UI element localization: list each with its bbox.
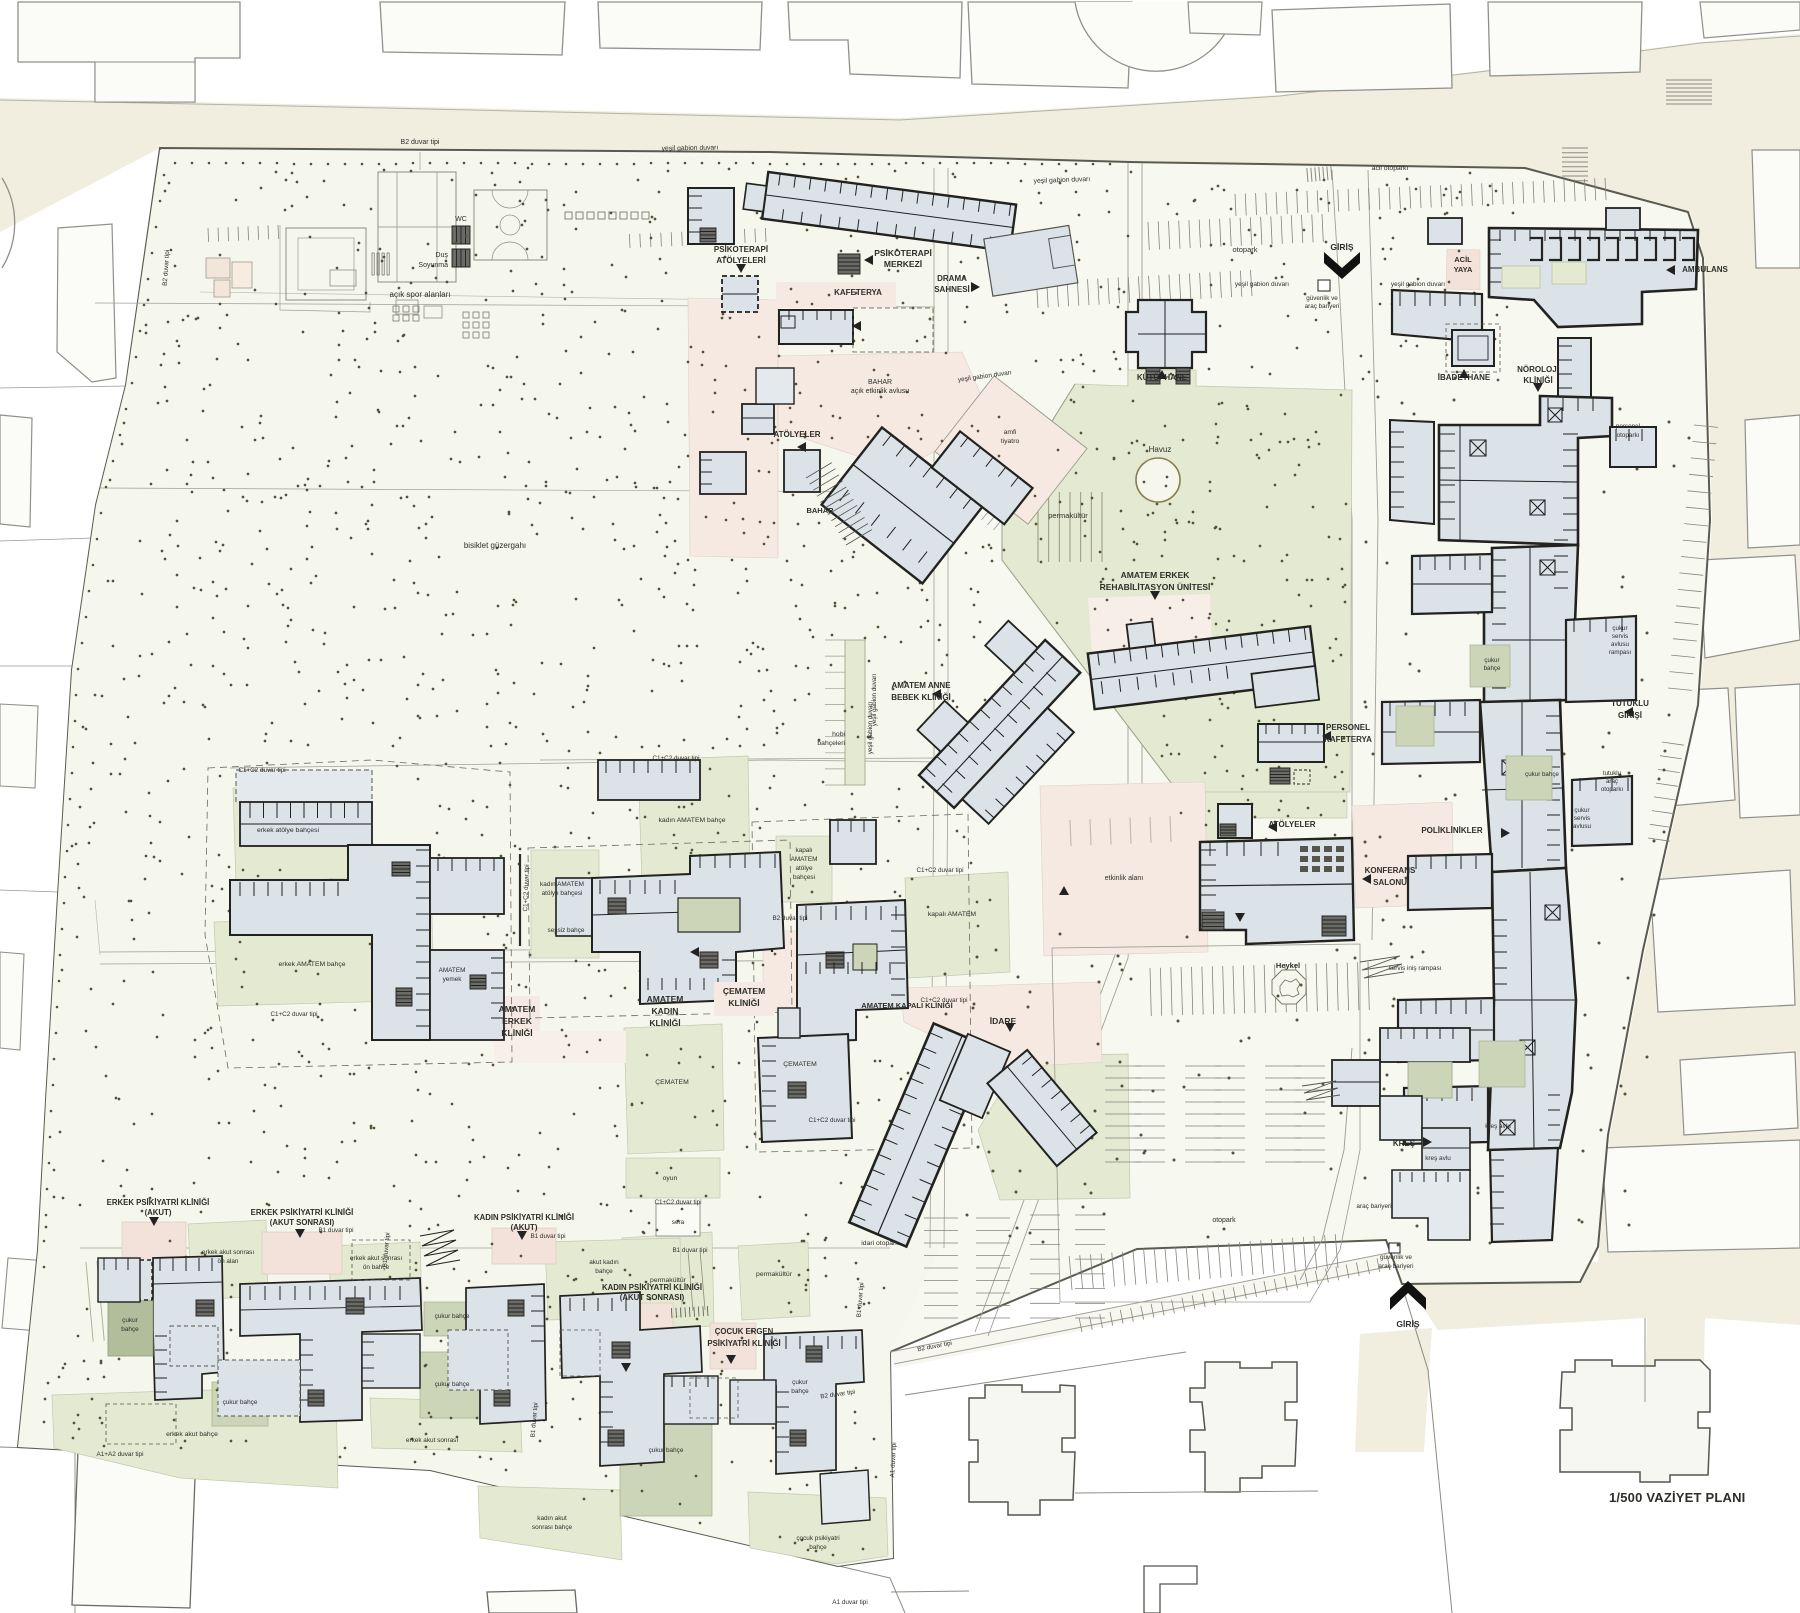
svg-text:C1+C2 duvar tipi: C1+C2 duvar tipi — [270, 1011, 317, 1018]
svg-text:ÇEMATEM: ÇEMATEM — [655, 1079, 689, 1086]
svg-text:bahçe: bahçe — [1484, 665, 1501, 672]
svg-text:araç: araç — [1606, 778, 1618, 785]
svg-text:KADIN PSİKİYATRİ KLİNİĞİ: KADIN PSİKİYATRİ KLİNİĞİ — [474, 1213, 574, 1222]
svg-text:amfi: amfi — [1004, 429, 1017, 436]
svg-text:ACİL: ACİL — [1454, 255, 1472, 264]
svg-text:C1+C2 duvar tipi: C1+C2 duvar tipi — [654, 1199, 701, 1206]
svg-text:çukur: çukur — [1574, 807, 1589, 814]
svg-text:A1 duvar tipi: A1 duvar tipi — [832, 1599, 868, 1606]
svg-text:KONFERANS: KONFERANS — [1365, 866, 1416, 875]
svg-text:araç bariyeri: araç bariyeri — [1305, 303, 1340, 310]
svg-text:ERKEK PSİKİYATRİ KLİNİĞİ: ERKEK PSİKİYATRİ KLİNİĞİ — [251, 1208, 354, 1217]
svg-text:çukur: çukur — [1484, 657, 1499, 664]
svg-text:yemek: yemek — [443, 976, 463, 983]
svg-text:avlusu: avlusu — [1611, 641, 1629, 648]
svg-text:GİRİŞ: GİRİŞ — [1396, 1319, 1419, 1329]
svg-text:çocuk psikiyatri: çocuk psikiyatri — [796, 1535, 839, 1542]
svg-text:erkek akut sonrası: erkek akut sonrası — [406, 1437, 458, 1444]
svg-text:otoparkı: otoparkı — [1601, 786, 1624, 793]
svg-text:kadın AMATEM bahçe: kadın AMATEM bahçe — [658, 817, 725, 824]
svg-text:yeşil gabion duvarı: yeşil gabion duvarı — [662, 145, 719, 153]
svg-text:B1 duvar tipi: B1 duvar tipi — [530, 1233, 565, 1240]
svg-text:idari otopark: idari otopark — [861, 1240, 899, 1247]
svg-text:KLİNİĞİ: KLİNİĞİ — [649, 1017, 680, 1028]
svg-text:bisiklet güzergahı: bisiklet güzergahı — [464, 541, 526, 550]
svg-text:WC: WC — [455, 216, 467, 223]
svg-text:ATÖLYELER: ATÖLYELER — [773, 430, 820, 439]
svg-text:AMATEM: AMATEM — [647, 994, 684, 1004]
svg-text:ATÖLYELERİ: ATÖLYELERİ — [716, 256, 765, 265]
svg-text:B1 duvar tipi: B1 duvar tipi — [318, 1227, 353, 1234]
svg-text:Duş: Duş — [436, 252, 449, 259]
svg-text:çukur bahçe: çukur bahçe — [435, 1313, 470, 1320]
svg-text:yeşil gabion duvarı: yeşil gabion duvarı — [1235, 281, 1289, 288]
svg-text:çukur: çukur — [1612, 625, 1627, 632]
svg-text:avlusu: avlusu — [1573, 823, 1591, 830]
svg-text:çukur bahçe: çukur bahçe — [1525, 771, 1559, 778]
svg-text:AMBULANS: AMBULANS — [1682, 265, 1728, 274]
svg-text:PERSONEL: PERSONEL — [1326, 723, 1370, 732]
svg-text:MERKEZİ: MERKEZİ — [884, 259, 922, 269]
svg-text:(AKUT): (AKUT) — [145, 1208, 172, 1217]
svg-text:çukur bahçe: çukur bahçe — [223, 1399, 258, 1406]
svg-text:çukur bahçe: çukur bahçe — [649, 1447, 684, 1454]
svg-text:AMATEM KAPALI KLİNİĞİ: AMATEM KAPALI KLİNİĞİ — [861, 1001, 952, 1010]
svg-text:ÇEMATEM: ÇEMATEM — [723, 986, 765, 996]
svg-text:KAFETERYA: KAFETERYA — [834, 288, 882, 297]
svg-text:KADIN: KADIN — [652, 1006, 679, 1016]
svg-text:acil otoparkı: acil otoparkı — [1372, 165, 1409, 172]
svg-text:C1+C2 duvar tipi: C1+C2 duvar tipi — [652, 755, 699, 762]
svg-text:kapalı AMATEM: kapalı AMATEM — [928, 911, 977, 918]
svg-text:ERKEK: ERKEK — [502, 1016, 533, 1026]
svg-text:TUTUKLU: TUTUKLU — [1611, 699, 1649, 708]
svg-text:AMATEM: AMATEM — [791, 856, 818, 863]
svg-text:(AKUT SONRASI): (AKUT SONRASI) — [620, 1293, 685, 1302]
svg-text:C1+C2 duvar tipi: C1+C2 duvar tipi — [808, 1117, 855, 1124]
svg-text:Heykel: Heykel — [1276, 961, 1300, 970]
svg-text:REHABİLİTASYON ÜNİTESİ: REHABİLİTASYON ÜNİTESİ — [1100, 582, 1211, 592]
svg-text:(AKUT): (AKUT) — [511, 1223, 538, 1232]
svg-text:A1+A2 duvar tipi: A1+A2 duvar tipi — [96, 1451, 143, 1458]
svg-text:çukur: çukur — [122, 1317, 138, 1324]
svg-text:B1 duvar tipi: B1 duvar tipi — [672, 1247, 707, 1254]
svg-text:tutuklu: tutuklu — [1603, 770, 1622, 777]
svg-text:BEBEK KLİNİĞİ: BEBEK KLİNİĞİ — [891, 693, 951, 702]
svg-text:ÇEMATEM: ÇEMATEM — [783, 1061, 817, 1068]
svg-text:hobi: hobi — [832, 731, 845, 738]
svg-text:ön alan: ön alan — [218, 1258, 239, 1265]
svg-text:SALONU: SALONU — [1373, 878, 1407, 887]
svg-text:Havuz: Havuz — [1149, 445, 1172, 454]
svg-text:PSİKOTERAPİ: PSİKOTERAPİ — [714, 245, 768, 254]
svg-text:bahçe: bahçe — [121, 1326, 139, 1333]
svg-text:erkek akut sonrası: erkek akut sonrası — [202, 1249, 254, 1256]
svg-text:POLİKLİNİKLER: POLİKLİNİKLER — [1421, 826, 1483, 835]
svg-text:atölye bahçesi: atölye bahçesi — [542, 890, 583, 897]
svg-text:araç bariyeri: araç bariyeri — [1378, 1263, 1413, 1270]
svg-text:ÇOCUK ERGEN: ÇOCUK ERGEN — [715, 1327, 774, 1336]
svg-text:B2 duvar tipi: B2 duvar tipi — [772, 915, 807, 922]
svg-text:yeşil gabion duvarı: yeşil gabion duvarı — [1391, 281, 1445, 288]
svg-text:bahçe: bahçe — [809, 1544, 827, 1551]
svg-text:KLİNİĞİ: KLİNİĞİ — [501, 1027, 532, 1038]
svg-text:kreş avlu: kreş avlu — [1485, 1123, 1511, 1130]
svg-text:C1+C2 duvar tipi: C1+C2 duvar tipi — [916, 867, 963, 874]
svg-text:yeşil gabion duvarı: yeşil gabion duvarı — [867, 702, 874, 755]
svg-text:kadın akut: kadın akut — [537, 1515, 567, 1522]
svg-text:erkek akut bahçe: erkek akut bahçe — [166, 1431, 218, 1438]
svg-text:kreş avlu: kreş avlu — [1425, 1155, 1451, 1162]
svg-text:personel: personel — [1616, 423, 1640, 430]
svg-text:KLİNİĞİ: KLİNİĞİ — [728, 997, 759, 1008]
svg-text:servis: servis — [1612, 633, 1628, 640]
svg-text:PSİKİYATRİ KLİNİĞİ: PSİKİYATRİ KLİNİĞİ — [707, 1339, 780, 1348]
svg-text:AMATEM ANNE: AMATEM ANNE — [891, 681, 951, 690]
svg-text:servis iniş rampası: servis iniş rampası — [1389, 965, 1442, 972]
svg-text:atölye: atölye — [795, 865, 812, 872]
svg-text:güvenlik ve: güvenlik ve — [1306, 295, 1338, 302]
svg-text:otopark: otopark — [1212, 1217, 1236, 1224]
svg-text:akut kadın: akut kadın — [589, 1259, 619, 1266]
svg-text:erkek atölye bahçesi: erkek atölye bahçesi — [257, 827, 319, 834]
svg-text:bahçe: bahçe — [595, 1268, 613, 1275]
svg-text:NÖROLOJİ: NÖROLOJİ — [1517, 365, 1559, 374]
svg-text:GİRİŞ: GİRİŞ — [1330, 242, 1353, 252]
svg-text:DRAMA: DRAMA — [937, 274, 967, 283]
svg-text:sonrası bahçe: sonrası bahçe — [532, 1524, 573, 1531]
svg-text:çukur: çukur — [792, 1379, 808, 1386]
svg-text:sera: sera — [672, 1219, 685, 1226]
svg-text:çukur bahçe: çukur bahçe — [435, 1381, 470, 1388]
svg-text:otopark: otopark — [1232, 245, 1257, 254]
svg-text:KAFETERYA: KAFETERYA — [1324, 735, 1372, 744]
svg-text:SAHNESİ: SAHNESİ — [934, 285, 970, 294]
svg-text:sessiz bahçe: sessiz bahçe — [548, 927, 585, 934]
svg-text:bahçe: bahçe — [791, 1388, 809, 1395]
svg-text:BAHAR: BAHAR — [806, 506, 834, 515]
svg-text:bahçesi: bahçesi — [793, 874, 815, 881]
svg-text:KADIN PSİKİYATRİ KLİNİĞİ: KADIN PSİKİYATRİ KLİNİĞİ — [602, 1283, 702, 1292]
svg-text:kadın AMATEM: kadın AMATEM — [540, 881, 584, 888]
svg-text:bahçeleri: bahçeleri — [817, 740, 845, 747]
svg-text:araç bariyeri: araç bariyeri — [1356, 1203, 1391, 1210]
svg-text:tiyatro: tiyatro — [1001, 438, 1020, 445]
svg-text:AMATEM ERKEK: AMATEM ERKEK — [1121, 570, 1191, 580]
svg-text:B2 duvar tipi: B2 duvar tipi — [401, 139, 440, 146]
svg-text:etkinlik alanı: etkinlik alanı — [1105, 875, 1144, 882]
svg-text:BAHAR: BAHAR — [868, 379, 892, 386]
svg-text:güvenlik ve: güvenlik ve — [1380, 1254, 1412, 1261]
svg-text:AMATEM: AMATEM — [439, 967, 466, 974]
svg-text:Soyunma: Soyunma — [418, 262, 448, 269]
svg-text:C1+C2 duvar tipi: C1+C2 duvar tipi — [238, 767, 285, 774]
svg-text:oyun: oyun — [663, 1175, 678, 1182]
svg-text:rampası: rampası — [1609, 649, 1632, 656]
svg-text:kapalı: kapalı — [795, 847, 812, 854]
svg-text:1/500 VAZİYET PLANI: 1/500 VAZİYET PLANI — [1609, 1490, 1746, 1505]
svg-text:erkek akut sonrası: erkek akut sonrası — [350, 1255, 402, 1262]
svg-text:(AKUT SONRASI): (AKUT SONRASI) — [270, 1218, 335, 1227]
svg-text:permakültür: permakültür — [1048, 511, 1088, 520]
svg-text:erkek AMATEM bahçe: erkek AMATEM bahçe — [278, 961, 345, 968]
svg-text:AMATEM: AMATEM — [499, 1004, 536, 1014]
svg-text:YAYA: YAYA — [1454, 265, 1473, 274]
svg-text:PSİKOTERAPİ: PSİKOTERAPİ — [874, 248, 932, 258]
svg-text:otoparkı: otoparkı — [1617, 432, 1640, 439]
svg-text:açık etkinlik avlusu: açık etkinlik avlusu — [851, 388, 909, 395]
svg-text:ERKEK PSİKİYATRİ KLİNİĞİ: ERKEK PSİKİYATRİ KLİNİĞİ — [107, 1198, 210, 1207]
svg-text:KREŞ: KREŞ — [1393, 1139, 1416, 1148]
svg-text:servis: servis — [1574, 815, 1590, 822]
svg-text:açık spor alanları: açık spor alanları — [390, 290, 451, 299]
svg-text:permakültür: permakültür — [756, 1271, 793, 1278]
